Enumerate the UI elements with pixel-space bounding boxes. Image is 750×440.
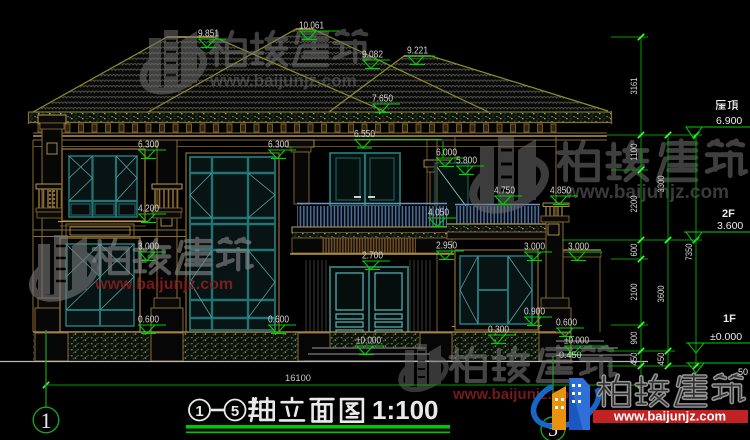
svg-text:±0.000: ±0.000 [356,336,381,347]
svg-text:4.750: 4.750 [494,186,515,197]
svg-text:6.900: 6.900 [716,115,742,127]
svg-text:3161: 3161 [629,78,640,95]
svg-text:0.600: 0.600 [556,318,577,329]
svg-text:5.800: 5.800 [456,156,477,167]
svg-text:6.300: 6.300 [268,140,289,151]
svg-text:5: 5 [231,403,239,420]
svg-text:2F: 2F [722,208,735,220]
svg-text:0.900: 0.900 [524,307,545,318]
svg-text:9.221: 9.221 [407,46,428,57]
svg-text:www.baijunjz.com: www.baijunjz.com [564,182,729,203]
svg-text:2.700: 2.700 [362,251,383,262]
svg-text:4.850: 4.850 [550,186,571,197]
svg-text:7.650: 7.650 [372,94,393,105]
svg-text:3.000: 3.000 [138,242,159,253]
svg-text:9.082: 9.082 [362,50,383,61]
svg-text:1: 1 [195,403,203,420]
svg-text:0.300: 0.300 [488,325,509,336]
svg-text:16100: 16100 [285,373,311,384]
svg-text:-0.450: -0.450 [556,350,582,360]
svg-text:±0.000: ±0.000 [710,331,742,343]
svg-text:2200: 2200 [629,196,640,213]
svg-text:7350: 7350 [684,244,695,261]
svg-text:450: 450 [656,353,667,366]
svg-text:450: 450 [629,353,640,366]
svg-text:6.550: 6.550 [354,129,375,140]
svg-text:4.200: 4.200 [138,204,159,215]
svg-text:6.000: 6.000 [436,148,457,159]
svg-text:4.050: 4.050 [428,208,449,219]
svg-text:0.600: 0.600 [268,315,289,326]
svg-text:3300: 3300 [656,176,667,193]
svg-text:2.950: 2.950 [436,241,457,252]
svg-text:±0.000: ±0.000 [564,336,589,347]
svg-text:3.000: 3.000 [568,242,589,253]
svg-text:6.300: 6.300 [138,140,159,151]
svg-text:600: 600 [629,244,640,257]
svg-text:1: 1 [41,408,52,433]
svg-text:www.baijunjz.com: www.baijunjz.com [94,276,233,293]
svg-text:2100: 2100 [629,284,640,301]
svg-text:3.600: 3.600 [717,220,743,232]
svg-text:www.baijunjz.com: www.baijunjz.com [613,409,726,424]
svg-text:1:100: 1:100 [372,395,439,425]
svg-text:1100: 1100 [629,144,640,161]
svg-text:3600: 3600 [656,286,667,303]
svg-text:1F: 1F [723,313,736,325]
svg-text:9.851: 9.851 [198,29,219,40]
svg-text:3.000: 3.000 [524,242,545,253]
svg-text:10.061: 10.061 [299,21,324,32]
svg-text:0.600: 0.600 [138,315,159,326]
svg-text:www.baijunjz.com: www.baijunjz.com [209,71,357,90]
svg-text:900: 900 [629,332,640,345]
